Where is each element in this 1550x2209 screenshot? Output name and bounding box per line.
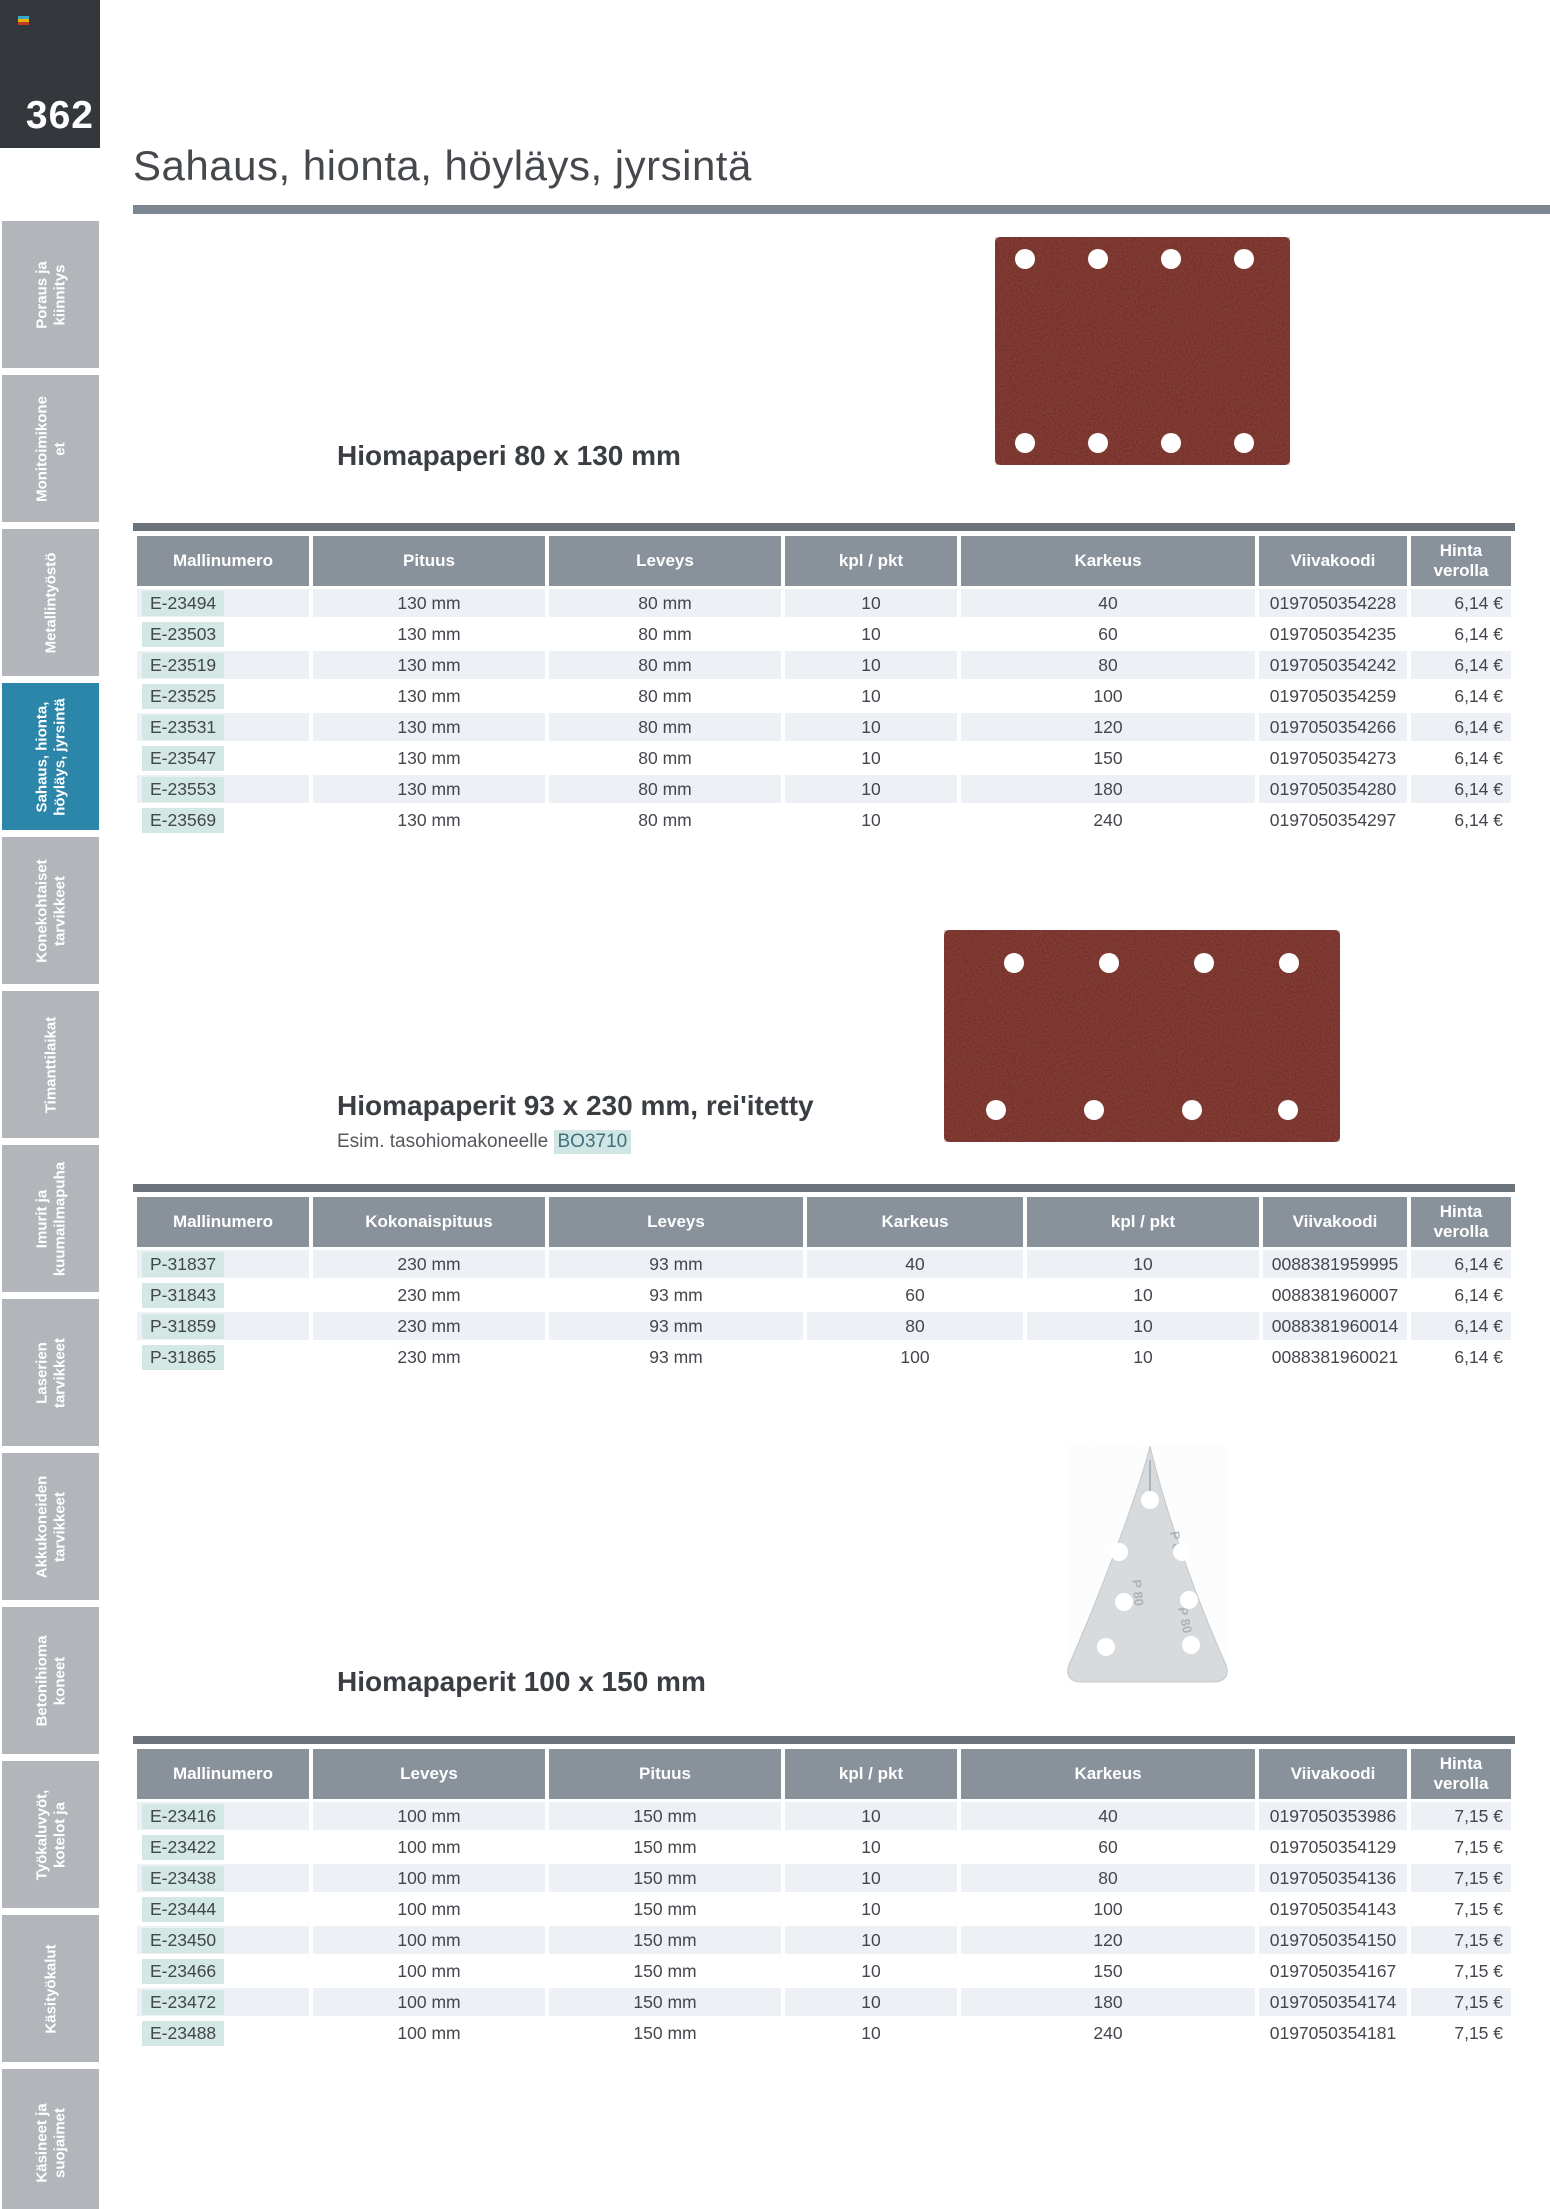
product-table-100x150: MallinumeroLeveysPituuskpl / pktKarkeusV… (133, 1746, 1515, 2050)
data-cell: 10 (785, 1926, 957, 1954)
model-number-badge[interactable]: E-23422 (142, 1835, 224, 1860)
sidebar-tab-label: Metallintyöstö (2, 529, 99, 676)
sidebar-tab-label: Poraus jakiinnitys (2, 221, 99, 368)
data-cell: 10 (785, 775, 957, 803)
data-cell: 80 mm (549, 713, 781, 741)
data-cell: 150 mm (549, 1926, 781, 1954)
data-cell: 100 (807, 1343, 1023, 1371)
data-cell: 40 (807, 1250, 1023, 1278)
data-cell: 0197050354174 (1259, 1988, 1407, 2016)
column-header: kpl / pkt (785, 536, 957, 586)
machine-model-link[interactable]: BO3710 (554, 1130, 632, 1154)
data-cell: 100 mm (313, 1864, 545, 1892)
sidebar-tab-label: Sahaus, hionta,höyläys, jyrsintä (2, 683, 99, 830)
data-cell: 0088381959995 (1263, 1250, 1407, 1278)
model-number-cell: E-23450 (137, 1926, 309, 1954)
data-cell: 80 mm (549, 682, 781, 710)
model-number-cell: E-23422 (137, 1833, 309, 1861)
sidebar-tab-9[interactable]: Akkukoneidentarvikkeet (2, 1453, 99, 1600)
column-header: Mallinumero (137, 1749, 309, 1799)
data-cell: 7,15 € (1411, 1957, 1511, 1985)
sidebar-tab-10[interactable]: Betonihiomakoneet (2, 1607, 99, 1754)
data-cell: 150 mm (549, 1864, 781, 1892)
data-cell: 6,14 € (1411, 682, 1511, 710)
data-cell: 130 mm (313, 713, 545, 741)
model-number-badge[interactable]: E-23503 (142, 622, 224, 647)
data-cell: 10 (1027, 1281, 1259, 1309)
model-number-badge[interactable]: E-23519 (142, 653, 224, 678)
data-cell: 10 (785, 620, 957, 648)
column-header: kpl / pkt (785, 1749, 957, 1799)
data-cell: 10 (785, 1802, 957, 1830)
table-row: E-23547130 mm80 mm1015001970503542736,14… (137, 744, 1511, 772)
model-number-cell: E-23444 (137, 1895, 309, 1923)
model-number-cell: E-23547 (137, 744, 309, 772)
column-header: Mallinumero (137, 1197, 309, 1247)
table-row: E-23519130 mm80 mm108001970503542426,14 … (137, 651, 1511, 679)
sidebar-tab-label: Käsineet jasuojaimet (2, 2069, 99, 2209)
table-row: E-23494130 mm80 mm104001970503542286,14 … (137, 589, 1511, 617)
column-header: Viivakoodi (1263, 1197, 1407, 1247)
model-number-cell: P-31837 (137, 1250, 309, 1278)
model-number-cell: E-23488 (137, 2019, 309, 2047)
table-row: E-23422100 mm150 mm106001970503541297,15… (137, 1833, 1511, 1861)
sidebar-tab-label: Konekohtaisettarvikkeet (2, 837, 99, 984)
table-row: P-31865230 mm93 mm1001000883819600216,14… (137, 1343, 1511, 1371)
sidebar-tab-2[interactable]: Monitoimikoneet (2, 375, 99, 522)
section-heading-100x150: Hiomapaperit 100 x 150 mm (337, 1666, 706, 1698)
data-cell: 0197050354235 (1259, 620, 1407, 648)
data-cell: 0088381960021 (1263, 1343, 1407, 1371)
sidebar-tab-8[interactable]: Laserientarvikkeet (2, 1299, 99, 1446)
table-row: E-23525130 mm80 mm1010001970503542596,14… (137, 682, 1511, 710)
data-cell: 100 mm (313, 1802, 545, 1830)
data-cell: 0197050354150 (1259, 1926, 1407, 1954)
column-header: Karkeus (807, 1197, 1023, 1247)
data-cell: 10 (785, 651, 957, 679)
table-row: E-23416100 mm150 mm104001970503539867,15… (137, 1802, 1511, 1830)
model-number-cell: E-23531 (137, 713, 309, 741)
data-cell: 10 (785, 589, 957, 617)
model-number-badge[interactable]: E-23525 (142, 684, 224, 709)
data-cell: 6,14 € (1411, 1281, 1511, 1309)
data-cell: 7,15 € (1411, 2019, 1511, 2047)
data-cell: 120 (961, 1926, 1255, 1954)
data-cell: 10 (785, 1988, 957, 2016)
table-row: E-23488100 mm150 mm1024001970503541817,1… (137, 2019, 1511, 2047)
data-cell: 150 mm (549, 2019, 781, 2047)
column-header: Leveys (313, 1749, 545, 1799)
product-image-sandpaper-80x130 (995, 237, 1290, 470)
column-header: kpl / pkt (1027, 1197, 1259, 1247)
data-cell: 0197050354143 (1259, 1895, 1407, 1923)
data-cell: 10 (785, 713, 957, 741)
data-cell: 180 (961, 1988, 1255, 2016)
data-cell: 6,14 € (1411, 651, 1511, 679)
data-cell: 150 mm (549, 1802, 781, 1830)
data-cell: 10 (785, 1833, 957, 1861)
data-cell: 130 mm (313, 775, 545, 803)
column-header: Leveys (549, 536, 781, 586)
sidebar-tab-label: Akkukoneidentarvikkeet (2, 1453, 99, 1600)
data-cell: 10 (785, 1864, 957, 1892)
page-number-box: 362 (0, 0, 100, 148)
column-header: Hinta verolla (1411, 1197, 1511, 1247)
sidebar-tab-5[interactable]: Konekohtaisettarvikkeet (2, 837, 99, 984)
section-subheading: Esim. tasohiomakoneelle BO3710 (337, 1131, 631, 1153)
model-number-cell: E-23553 (137, 775, 309, 803)
data-cell: 10 (1027, 1312, 1259, 1340)
data-cell: 240 (961, 806, 1255, 834)
sidebar-tab-13[interactable]: Käsineet jasuojaimet (2, 2069, 99, 2209)
data-cell: 150 mm (549, 1895, 781, 1923)
data-cell: 93 mm (549, 1312, 803, 1340)
data-cell: 100 mm (313, 2019, 545, 2047)
data-cell: 80 mm (549, 620, 781, 648)
table-row: E-23444100 mm150 mm1010001970503541437,1… (137, 1895, 1511, 1923)
data-cell: 6,14 € (1411, 1312, 1511, 1340)
table-top-bar (133, 1736, 1515, 1744)
sidebar-tab-4-active[interactable]: Sahaus, hionta,höyläys, jyrsintä (2, 683, 99, 830)
sidebar-nav: Poraus jakiinnitysMonitoimikoneetMetalli… (2, 221, 99, 2209)
header-row: MallinumeroPituusLeveyskpl / pktKarkeusV… (137, 536, 1511, 586)
product-table-80x130: MallinumeroPituusLeveyskpl / pktKarkeusV… (133, 533, 1515, 837)
data-cell: 80 mm (549, 806, 781, 834)
table-row: P-31859230 mm93 mm801000883819600146,14 … (137, 1312, 1511, 1340)
column-header: Karkeus (961, 536, 1255, 586)
sidebar-tab-label: Imurit jakuumailmapuha (2, 1145, 99, 1292)
title-divider (133, 205, 1550, 214)
table-row: E-23531130 mm80 mm1012001970503542666,14… (137, 713, 1511, 741)
data-cell: 120 (961, 713, 1255, 741)
data-cell: 0197050354181 (1259, 2019, 1407, 2047)
table-section-80x130: MallinumeroPituusLeveyskpl / pktKarkeusV… (133, 523, 1515, 837)
product-image-delta-sheet-100x150: P 80 P 80 P 80 (1058, 1440, 1236, 1693)
data-cell: 100 mm (313, 1988, 545, 2016)
data-cell: 100 (961, 1895, 1255, 1923)
model-number-badge[interactable]: P-31843 (142, 1283, 224, 1308)
data-cell: 100 mm (313, 1895, 545, 1923)
table-row: E-23466100 mm150 mm1015001970503541677,1… (137, 1957, 1511, 1985)
sidebar-tab-label: Monitoimikoneet (2, 375, 99, 522)
table-section-93x230: MallinumeroKokonaispituusLeveysKarkeuskp… (133, 1184, 1515, 1374)
data-cell: 150 mm (549, 1988, 781, 2016)
data-cell: 130 mm (313, 806, 545, 834)
data-cell: 0197050354129 (1259, 1833, 1407, 1861)
model-number-badge[interactable]: E-23547 (142, 746, 224, 771)
product-table-93x230: MallinumeroKokonaispituusLeveysKarkeuskp… (133, 1194, 1515, 1374)
data-cell: 6,14 € (1411, 806, 1511, 834)
model-number-badge[interactable]: E-23466 (142, 1959, 224, 1984)
model-number-cell: E-23519 (137, 651, 309, 679)
model-number-badge[interactable]: E-23450 (142, 1928, 224, 1953)
table-section-100x150: MallinumeroLeveysPituuskpl / pktKarkeusV… (133, 1736, 1515, 2050)
sidebar-tab-label: Betonihiomakoneet (2, 1607, 99, 1754)
data-cell: 7,15 € (1411, 1988, 1511, 2016)
data-cell: 6,14 € (1411, 775, 1511, 803)
model-number-badge[interactable]: E-23416 (142, 1804, 224, 1829)
model-number-cell: E-23438 (137, 1864, 309, 1892)
data-cell: 0088381960014 (1263, 1312, 1407, 1340)
data-cell: 0197050354266 (1259, 713, 1407, 741)
data-cell: 100 (961, 682, 1255, 710)
sidebar-tab-3[interactable]: Metallintyöstö (2, 529, 99, 676)
column-header: Hinta verolla (1411, 536, 1511, 586)
data-cell: 60 (807, 1281, 1023, 1309)
data-cell: 0197050354242 (1259, 651, 1407, 679)
data-cell: 180 (961, 775, 1255, 803)
sidebar-tab-label: Laserientarvikkeet (2, 1299, 99, 1446)
data-cell: 0088381960007 (1263, 1281, 1407, 1309)
product-image-sandpaper-93x230 (944, 930, 1340, 1147)
sidebar-tab-label: Työkaluvyöt,kotelot ja (2, 1761, 99, 1908)
model-number-cell: E-23494 (137, 589, 309, 617)
data-cell: 80 (961, 1864, 1255, 1892)
section-heading-80x130: Hiomapaperi 80 x 130 mm (337, 440, 681, 472)
sidebar-tab-11[interactable]: Työkaluvyöt,kotelot ja (2, 1761, 99, 1908)
column-header: Leveys (549, 1197, 803, 1247)
sidebar-tab-6[interactable]: Timanttilaikat (2, 991, 99, 1138)
data-cell: 6,14 € (1411, 1250, 1511, 1278)
header-row: MallinumeroLeveysPituuskpl / pktKarkeusV… (137, 1749, 1511, 1799)
data-cell: 80 mm (549, 651, 781, 679)
model-number-cell: E-23416 (137, 1802, 309, 1830)
model-number-badge[interactable]: E-23438 (142, 1866, 224, 1891)
data-cell: 0197050354297 (1259, 806, 1407, 834)
data-cell: 150 (961, 744, 1255, 772)
data-cell: 10 (785, 806, 957, 834)
data-cell: 6,14 € (1411, 744, 1511, 772)
data-cell: 0197050354273 (1259, 744, 1407, 772)
data-cell: 130 mm (313, 589, 545, 617)
data-cell: 7,15 € (1411, 1864, 1511, 1892)
data-cell: 10 (785, 1957, 957, 1985)
data-cell: 230 mm (313, 1250, 545, 1278)
model-number-cell: P-31859 (137, 1312, 309, 1340)
model-number-badge[interactable]: E-23488 (142, 2021, 224, 2046)
data-cell: 40 (961, 1802, 1255, 1830)
section-heading-93x230: Hiomapaperit 93 x 230 mm, rei'itetty (337, 1090, 814, 1122)
model-number-badge[interactable]: E-23472 (142, 1990, 224, 2015)
column-header: Viivakoodi (1259, 1749, 1407, 1799)
model-number-cell: E-23525 (137, 682, 309, 710)
model-number-cell: E-23466 (137, 1957, 309, 1985)
data-cell: 7,15 € (1411, 1802, 1511, 1830)
data-cell: 80 mm (549, 589, 781, 617)
data-cell: 60 (961, 620, 1255, 648)
data-cell: 130 mm (313, 682, 545, 710)
data-cell: 130 mm (313, 651, 545, 679)
data-cell: 130 mm (313, 744, 545, 772)
table-top-bar (133, 523, 1515, 531)
data-cell: 0197050354136 (1259, 1864, 1407, 1892)
model-number-badge[interactable]: E-23444 (142, 1897, 224, 1922)
model-number-cell: E-23472 (137, 1988, 309, 2016)
data-cell: 40 (961, 589, 1255, 617)
catalog-page: 362 Sahaus, hionta, höyläys, jyrsintä Po… (0, 0, 1550, 2209)
data-cell: 150 mm (549, 1957, 781, 1985)
table-row: E-23553130 mm80 mm1018001970503542806,14… (137, 775, 1511, 803)
table-row: E-23438100 mm150 mm108001970503541367,15… (137, 1864, 1511, 1892)
model-number-badge[interactable]: E-23531 (142, 715, 224, 740)
table-row: P-31837230 mm93 mm401000883819599956,14 … (137, 1250, 1511, 1278)
data-cell: 93 mm (549, 1281, 803, 1309)
table-row: E-23450100 mm150 mm1012001970503541507,1… (137, 1926, 1511, 1954)
model-number-badge[interactable]: E-23494 (142, 591, 224, 616)
data-cell: 80 (807, 1312, 1023, 1340)
model-number-badge[interactable]: P-31865 (142, 1345, 224, 1370)
data-cell: 230 mm (313, 1343, 545, 1371)
data-cell: 80 mm (549, 744, 781, 772)
data-cell: 0197050354259 (1259, 682, 1407, 710)
sidebar-tab-label: Käsityökalut (2, 1915, 99, 2062)
data-cell: 150 mm (549, 1833, 781, 1861)
model-number-cell: E-23569 (137, 806, 309, 834)
subheading-text: Esim. tasohiomakoneelle (337, 1131, 548, 1152)
catalog-logo-icon (18, 16, 29, 25)
data-cell: 80 (961, 651, 1255, 679)
data-cell: 93 mm (549, 1343, 803, 1371)
table-row: E-23569130 mm80 mm1024001970503542976,14… (137, 806, 1511, 834)
data-cell: 6,14 € (1411, 1343, 1511, 1371)
model-number-badge[interactable]: P-31859 (142, 1314, 224, 1339)
column-header: Kokonaispituus (313, 1197, 545, 1247)
data-cell: 93 mm (549, 1250, 803, 1278)
data-cell: 10 (1027, 1250, 1259, 1278)
model-number-badge[interactable]: E-23569 (142, 808, 224, 833)
data-cell: 0197050353986 (1259, 1802, 1407, 1830)
sidebar-tab-7[interactable]: Imurit jakuumailmapuha (2, 1145, 99, 1292)
data-cell: 100 mm (313, 1833, 545, 1861)
column-header: Pituus (313, 536, 545, 586)
data-cell: 10 (785, 2019, 957, 2047)
data-cell: 10 (1027, 1343, 1259, 1371)
column-header: Mallinumero (137, 536, 309, 586)
column-header: Pituus (549, 1749, 781, 1799)
data-cell: 100 mm (313, 1957, 545, 1985)
table-top-bar (133, 1184, 1515, 1192)
column-header: Hinta verolla (1411, 1749, 1511, 1799)
data-cell: 100 mm (313, 1926, 545, 1954)
sidebar-tab-12[interactable]: Käsityökalut (2, 1915, 99, 2062)
data-cell: 130 mm (313, 620, 545, 648)
data-cell: 230 mm (313, 1312, 545, 1340)
sidebar-tab-label: Timanttilaikat (2, 991, 99, 1138)
table-row: E-23472100 mm150 mm1018001970503541747,1… (137, 1988, 1511, 2016)
data-cell: 240 (961, 2019, 1255, 2047)
data-cell: 10 (785, 744, 957, 772)
data-cell: 10 (785, 1895, 957, 1923)
data-cell: 6,14 € (1411, 620, 1511, 648)
data-cell: 230 mm (313, 1281, 545, 1309)
page-number: 362 (26, 94, 94, 138)
data-cell: 7,15 € (1411, 1895, 1511, 1923)
model-number-cell: P-31865 (137, 1343, 309, 1371)
table-row: E-23503130 mm80 mm106001970503542356,14 … (137, 620, 1511, 648)
header-row: MallinumeroKokonaispituusLeveysKarkeuskp… (137, 1197, 1511, 1247)
table-row: P-31843230 mm93 mm601000883819600076,14 … (137, 1281, 1511, 1309)
data-cell: 60 (961, 1833, 1255, 1861)
data-cell: 7,15 € (1411, 1926, 1511, 1954)
page-title: Sahaus, hionta, höyläys, jyrsintä (133, 142, 752, 190)
data-cell: 150 (961, 1957, 1255, 1985)
model-number-badge[interactable]: E-23553 (142, 777, 224, 802)
column-header: Karkeus (961, 1749, 1255, 1799)
column-header: Viivakoodi (1259, 536, 1407, 586)
model-number-cell: E-23503 (137, 620, 309, 648)
model-number-badge[interactable]: P-31837 (142, 1252, 224, 1277)
sidebar-tab-1[interactable]: Poraus jakiinnitys (2, 221, 99, 368)
data-cell: 0197050354228 (1259, 589, 1407, 617)
data-cell: 6,14 € (1411, 713, 1511, 741)
data-cell: 6,14 € (1411, 589, 1511, 617)
data-cell: 10 (785, 682, 957, 710)
data-cell: 80 mm (549, 775, 781, 803)
data-cell: 0197050354167 (1259, 1957, 1407, 1985)
model-number-cell: P-31843 (137, 1281, 309, 1309)
data-cell: 0197050354280 (1259, 775, 1407, 803)
data-cell: 7,15 € (1411, 1833, 1511, 1861)
